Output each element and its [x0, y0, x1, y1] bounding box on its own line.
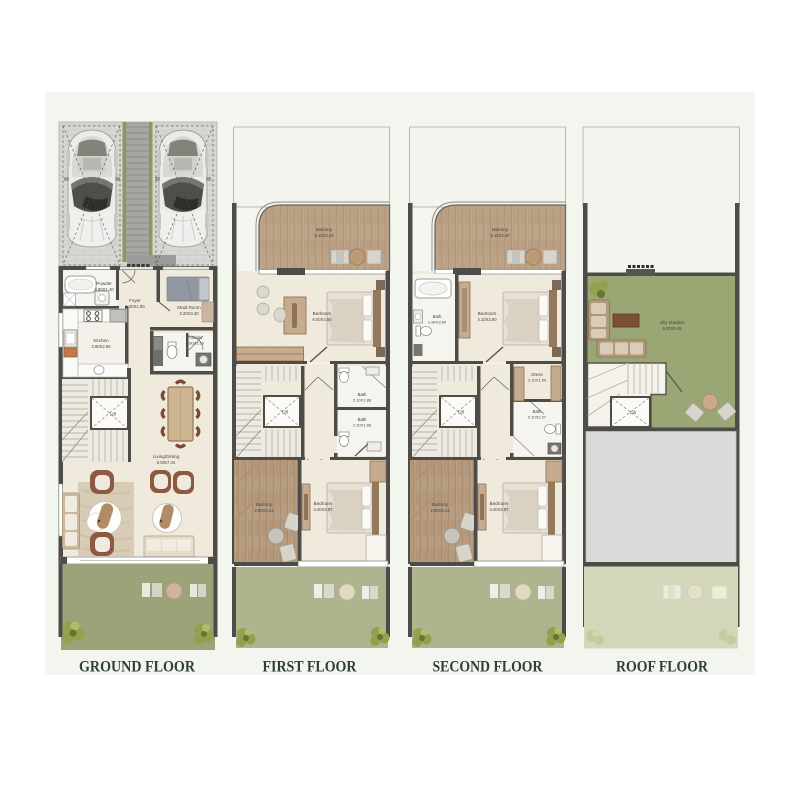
svg-text:GROUND FLOOR: GROUND FLOOR [79, 659, 195, 676]
svg-text:2.80X4.13: 2.80X4.13 [254, 508, 274, 513]
svg-text:Bath: Bath [358, 392, 367, 397]
svg-text:4.10X3.80: 4.10X3.80 [477, 317, 497, 322]
svg-text:Lift: Lift [458, 410, 465, 415]
svg-text:Lift: Lift [282, 410, 289, 415]
svg-text:6.00X3.90: 6.00X3.90 [312, 317, 332, 322]
svg-text:ROOF FLOOR: ROOF FLOOR [616, 659, 708, 676]
svg-text:6.00x7.44: 6.00x7.44 [157, 460, 176, 465]
svg-text:3.80X1.40: 3.80X1.40 [94, 287, 114, 292]
svg-text:Lift: Lift [110, 412, 117, 417]
svg-text:Bedroom: Bedroom [478, 311, 497, 316]
svg-text:Bedroom: Bedroom [313, 311, 332, 316]
svg-text:Balcony: Balcony [432, 502, 449, 507]
svg-text:Sky Garden: Sky Garden [660, 320, 685, 325]
svg-text:SECOND FLOOR: SECOND FLOOR [433, 659, 543, 676]
svg-text:2.10X2.27: 2.10X2.27 [528, 415, 547, 420]
svg-text:Lift: Lift [630, 410, 637, 415]
svg-text:Foyer: Foyer [129, 298, 141, 303]
svg-text:3.40X3.97: 3.40X3.97 [313, 507, 333, 512]
svg-text:2.80X4.13: 2.80X4.13 [430, 508, 450, 513]
svg-text:FIRST FLOOR: FIRST FLOOR [263, 659, 357, 676]
svg-text:Bath: Bath [358, 417, 367, 422]
svg-text:2.10X1.50: 2.10X1.50 [528, 378, 547, 383]
svg-text:3.20X3.40: 3.20X3.40 [179, 311, 199, 316]
svg-text:5.10X2.60: 5.10X2.60 [490, 233, 510, 238]
svg-text:Dress: Dress [531, 372, 542, 377]
svg-text:5.10X2.40: 5.10X2.40 [314, 233, 334, 238]
svg-text:1.90X3.60: 1.90X3.60 [428, 320, 447, 325]
svg-text:Balcony: Balcony [256, 502, 273, 507]
svg-text:2.10X1.88: 2.10X1.88 [353, 398, 372, 403]
svg-text:6.00X5.95: 6.00X5.95 [662, 326, 682, 331]
svg-text:Powder: Powder [96, 281, 112, 286]
svg-text:Powder: Powder [188, 335, 203, 340]
svg-text:1.60X1.50: 1.60X1.50 [186, 341, 205, 346]
svg-text:Bedroom: Bedroom [314, 501, 333, 506]
svg-text:Bedroom: Bedroom [490, 501, 509, 506]
svg-text:3.40X3.97: 3.40X3.97 [489, 507, 509, 512]
svg-text:Bath: Bath [533, 409, 542, 414]
svg-text:Living/Dining: Living/Dining [153, 454, 180, 459]
svg-text:2.10X1.88: 2.10X1.88 [353, 423, 372, 428]
svg-text:Balcony: Balcony [492, 227, 509, 232]
svg-text:Balcony: Balcony [316, 227, 333, 232]
svg-text:2.80X2.66: 2.80X2.66 [91, 344, 111, 349]
svg-text:Kitchen: Kitchen [93, 338, 109, 343]
svg-text:Bath: Bath [433, 314, 442, 319]
svg-text:Maid Room: Maid Room [177, 305, 201, 310]
